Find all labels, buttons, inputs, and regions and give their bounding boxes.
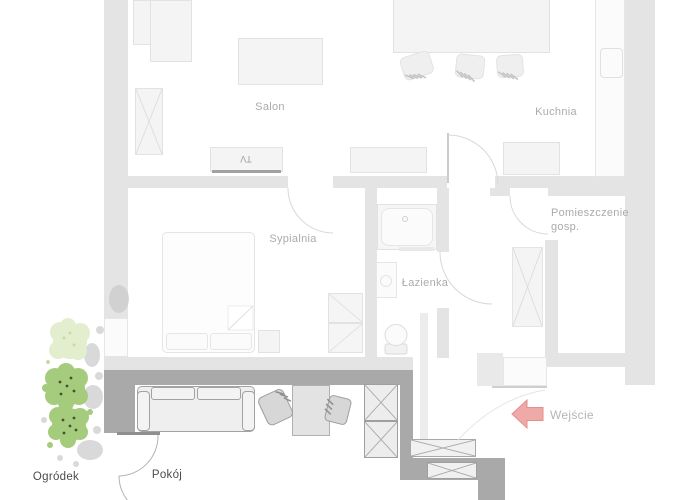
wall-bathroom-right-lower bbox=[437, 308, 449, 358]
bed-pillow-right bbox=[210, 333, 252, 350]
wall-utility-left bbox=[545, 240, 558, 353]
wall-utility-top-a bbox=[490, 188, 510, 196]
entry-wall-vertical bbox=[478, 480, 505, 500]
room-label-room: Pokój bbox=[152, 469, 182, 481]
kitchen-chair-1 bbox=[399, 50, 436, 84]
bedroom-wardrobe-bottom bbox=[328, 323, 363, 353]
entry-window-upper bbox=[410, 439, 476, 457]
kitchen-chair-2 bbox=[455, 54, 486, 83]
nightstand bbox=[258, 330, 280, 353]
room-door-threshold bbox=[117, 432, 160, 435]
garden-tree-middle-specks bbox=[59, 377, 76, 396]
bedroom-wardrobe-top bbox=[328, 293, 363, 323]
room-wall-top bbox=[104, 370, 413, 385]
coffee-table bbox=[238, 38, 323, 85]
bathtub-deck bbox=[399, 247, 434, 251]
room-sofa-arm-left bbox=[137, 391, 150, 431]
garden-window bbox=[104, 318, 128, 357]
wall-left-upper bbox=[104, 0, 128, 318]
room-label-utility: Pomieszczenie gosp. bbox=[551, 206, 629, 234]
room-label-bathroom: Łazienka bbox=[402, 277, 448, 289]
entrance-door-arc bbox=[458, 390, 545, 440]
tv-label: TV bbox=[240, 154, 252, 164]
kitchen-chair-3 bbox=[496, 54, 524, 81]
room-wardrobe-bottom bbox=[364, 421, 398, 458]
entrance-threshold bbox=[492, 386, 547, 388]
room-wall-left bbox=[104, 385, 135, 433]
room-label-bedroom: Sypialnia bbox=[269, 233, 316, 245]
wall-right bbox=[625, 0, 655, 385]
room-label-salon: Salon bbox=[255, 101, 285, 113]
wall-bathroom-right-upper bbox=[437, 188, 449, 252]
wall-divider-a bbox=[128, 176, 288, 188]
bathtub-inner bbox=[381, 208, 433, 246]
corner-sofa bbox=[133, 0, 151, 45]
garden-tree-pale bbox=[49, 318, 90, 360]
entrance-cabinet-b bbox=[503, 357, 547, 386]
kitchen-counter bbox=[595, 0, 625, 177]
wall-divider-c bbox=[495, 176, 627, 188]
toilet bbox=[385, 325, 407, 355]
salon-shelf bbox=[135, 88, 163, 155]
room-wardrobe-top bbox=[364, 384, 398, 421]
room-label-utility-line2: gosp. bbox=[551, 220, 629, 234]
utility-storage bbox=[512, 247, 543, 327]
entrance-label: Wejście bbox=[550, 408, 594, 422]
wall-utility-bottom bbox=[545, 353, 627, 367]
wall-lower-light bbox=[104, 357, 413, 370]
garden-tree-pale-specks bbox=[46, 332, 76, 365]
wall-utility-top-b bbox=[548, 188, 627, 196]
washing-machine bbox=[376, 262, 397, 298]
room-desk-chair-left bbox=[257, 387, 297, 427]
kitchen-door-arc bbox=[448, 135, 498, 185]
kitchen-sink bbox=[600, 48, 623, 78]
wall-hall-thin bbox=[420, 313, 428, 440]
entry-window-lower bbox=[427, 462, 477, 479]
wall-divider-b bbox=[333, 176, 447, 188]
kitchen-cabinet bbox=[503, 142, 560, 175]
dining-table bbox=[393, 0, 550, 53]
bedroom-door-arc bbox=[288, 188, 333, 233]
corner-sofa-seat bbox=[150, 0, 192, 62]
bed-pillow-left bbox=[166, 333, 208, 350]
room-sofa-arm-right bbox=[242, 391, 255, 431]
garden-tree-lower-specks bbox=[62, 417, 78, 435]
room-label-kitchen: Kuchnia bbox=[535, 106, 577, 118]
entrance-arrow-icon bbox=[512, 400, 543, 428]
tv-screen bbox=[212, 170, 281, 173]
utility-door-arc bbox=[510, 196, 548, 234]
room-desk bbox=[292, 385, 330, 436]
garden-tree-middle bbox=[42, 363, 88, 411]
salon-cabinet bbox=[350, 147, 427, 173]
room-label-garden: Ogródek bbox=[33, 471, 79, 483]
room-sofa-back-cushion-left bbox=[151, 387, 195, 400]
room-sofa-back-cushion-right bbox=[197, 387, 241, 400]
room-label-utility-line1: Pomieszczenie bbox=[551, 206, 629, 220]
floor-plan: Salon Kuchnia Sypialnia Łazienka Pomiesz… bbox=[0, 0, 700, 500]
entrance-cabinet-a bbox=[477, 353, 503, 386]
garden-tree-lower bbox=[47, 407, 93, 448]
